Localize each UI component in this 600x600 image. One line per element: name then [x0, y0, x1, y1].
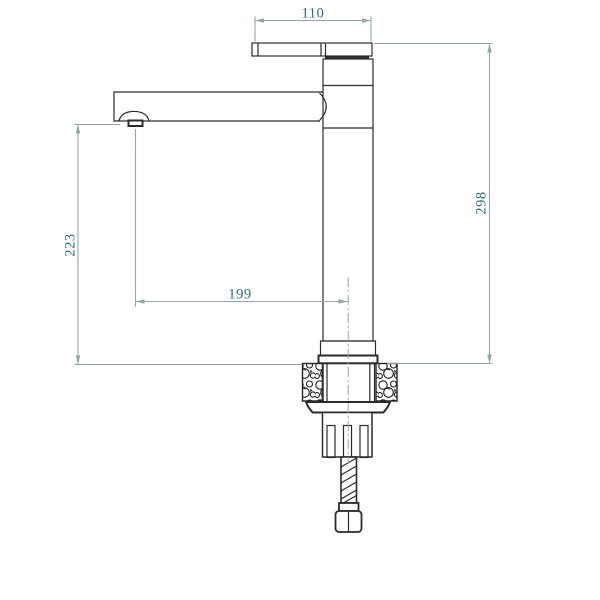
mounting-nut — [323, 413, 373, 458]
threaded-supply-hose — [341, 457, 357, 503]
arrow-left-icon — [255, 18, 264, 23]
dim-handle-length-label: 110 — [301, 6, 324, 22]
drawing-canvas: 110 298 223 199 — [0, 0, 600, 600]
dim-spout-height: 223 — [63, 125, 303, 365]
arrow-down-icon — [487, 355, 492, 364]
swivel-spout — [114, 92, 326, 126]
lever-handle — [252, 43, 372, 59]
faucet-technical-drawing: 110 298 223 199 — [0, 0, 600, 600]
dim-overall-height: 298 — [374, 44, 493, 364]
faucet-outline — [114, 43, 397, 532]
arrow-down-icon — [76, 356, 81, 365]
arrow-right-icon — [362, 18, 371, 23]
dim-spout-height-label: 223 — [63, 233, 79, 257]
arrow-left-icon — [136, 299, 145, 304]
dim-handle-length: 110 — [255, 6, 371, 42]
dim-spout-reach: 199 — [136, 129, 348, 307]
hose-coupling-nut — [336, 503, 362, 532]
arrow-right-icon — [339, 299, 348, 304]
countertop-cross-section — [303, 363, 398, 402]
arrow-up-icon — [487, 44, 492, 53]
arrow-up-icon — [76, 125, 81, 134]
aerator-nozzle — [129, 121, 143, 127]
dim-overall-height-label: 298 — [474, 191, 490, 215]
dim-spout-reach-label: 199 — [228, 287, 252, 303]
